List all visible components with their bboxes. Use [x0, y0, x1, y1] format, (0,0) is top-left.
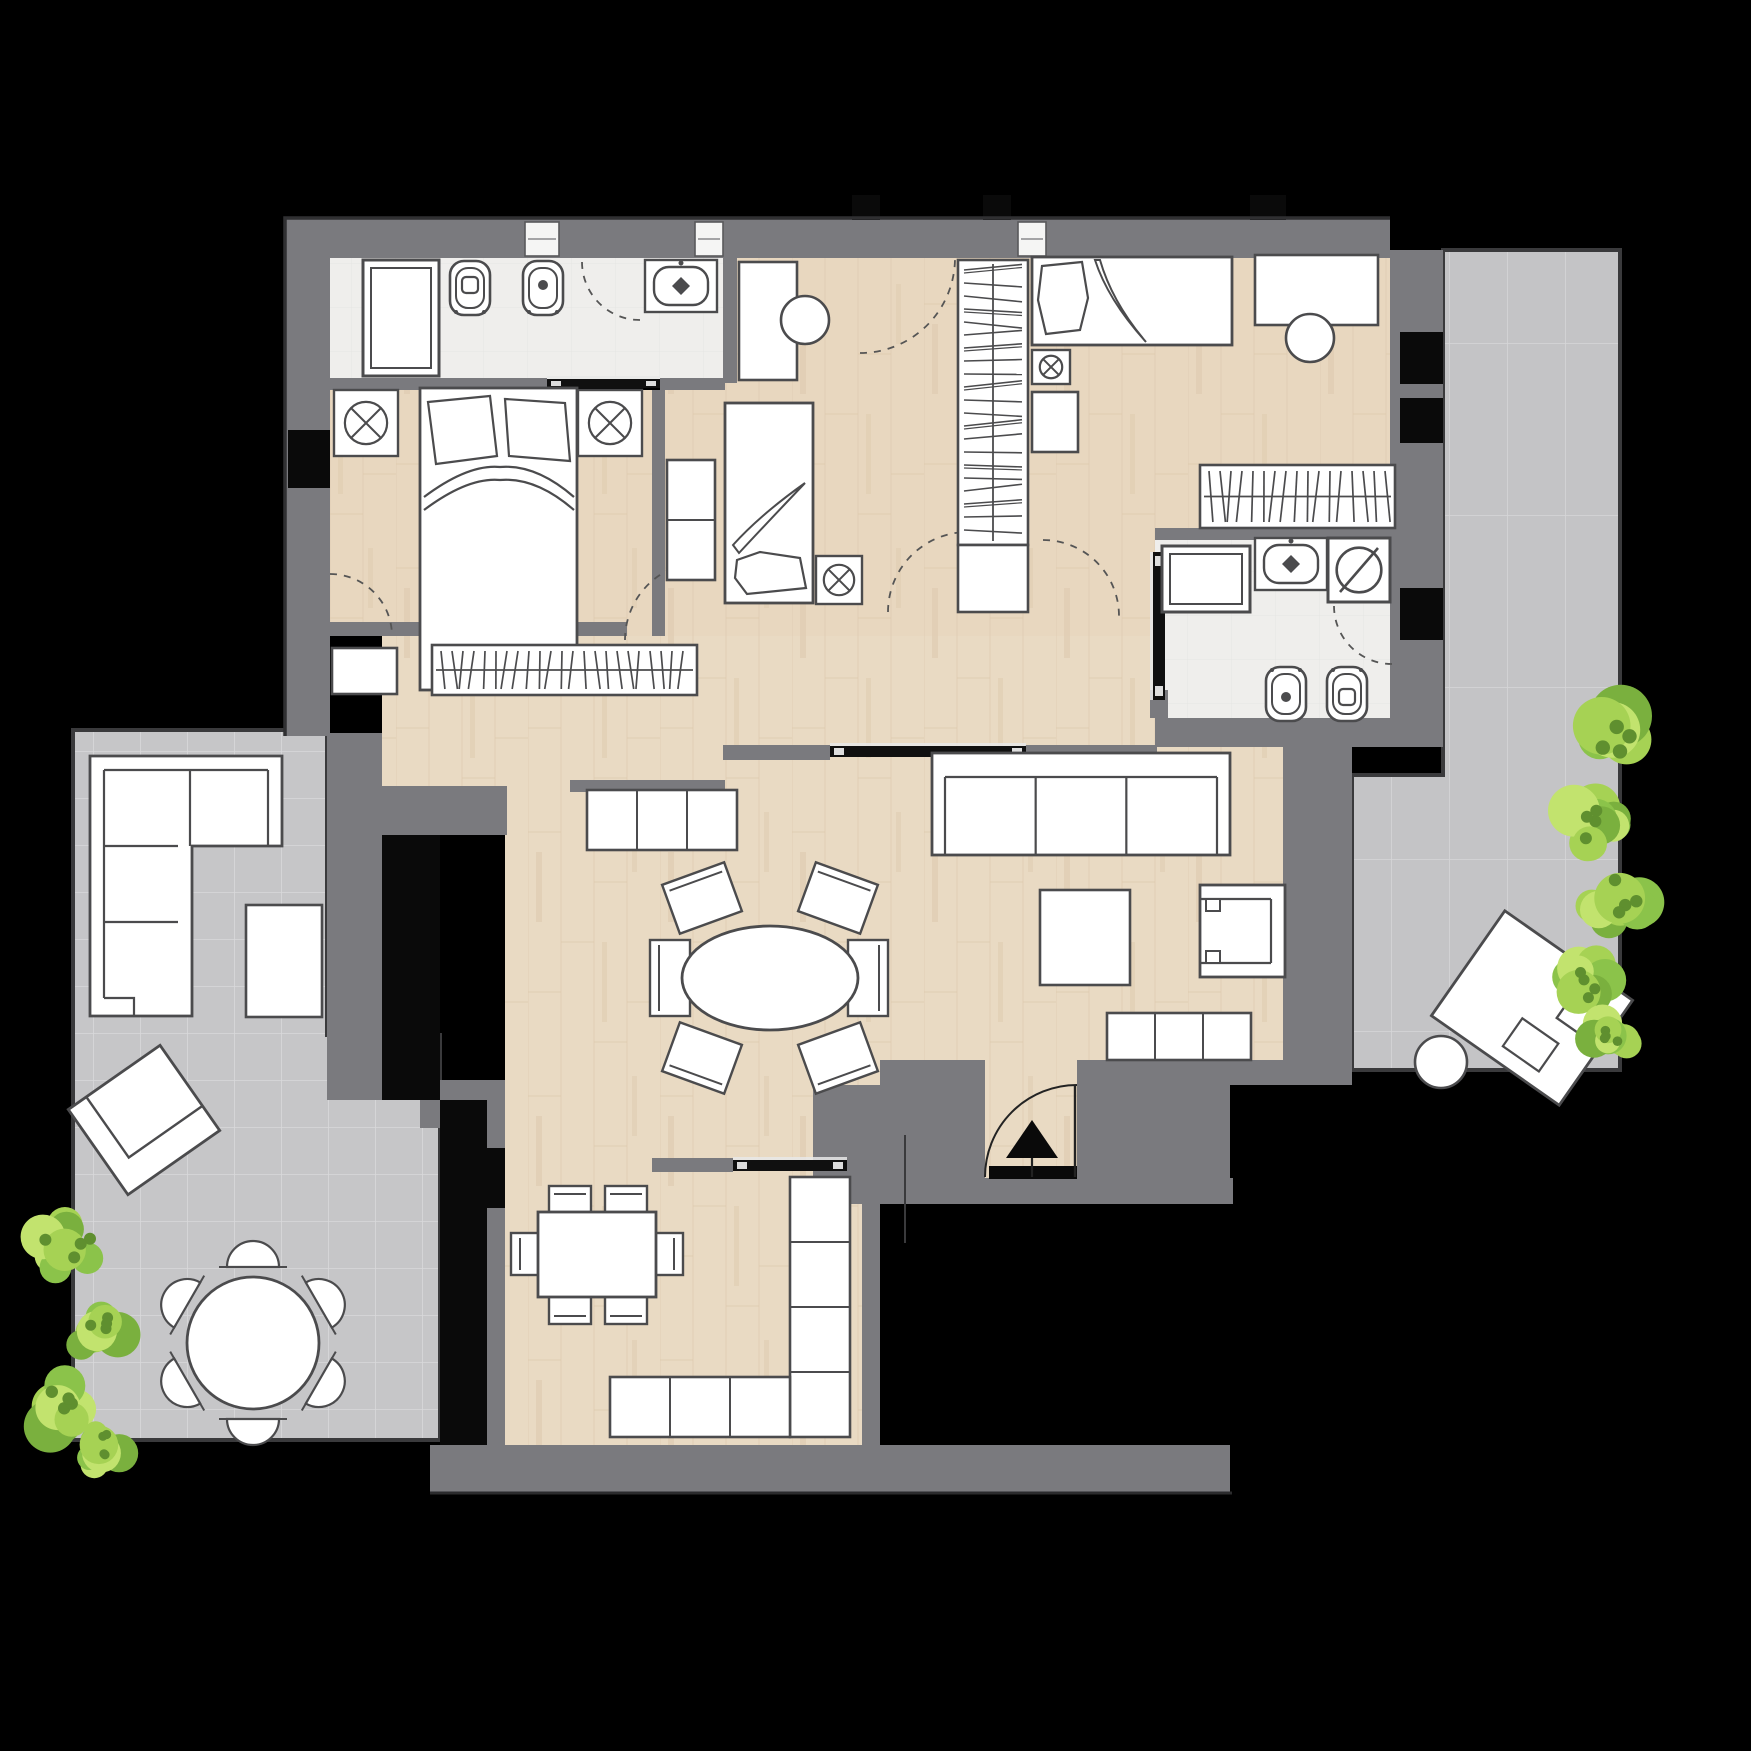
- side-table: [1415, 1036, 1467, 1088]
- bidet-hinge: [527, 310, 531, 314]
- wall: [1155, 718, 1390, 747]
- wall: [1077, 1085, 1230, 1180]
- cabinet: [1032, 392, 1078, 452]
- wall-gap: [487, 1148, 505, 1208]
- sliding-door-kitchen-track: [733, 1157, 847, 1160]
- kitchen-table-chair: [549, 1296, 591, 1324]
- sliding-door-kitchen-handle: [833, 1162, 843, 1169]
- plant-leaf: [80, 1426, 119, 1465]
- cabinet: [332, 648, 397, 694]
- plant-leaf-dark: [1609, 874, 1621, 886]
- wall-gap: [288, 430, 330, 488]
- plant-leaf-dark: [1600, 1034, 1610, 1044]
- sofa: [932, 753, 1230, 855]
- bidet-drain: [538, 280, 548, 290]
- plant-leaf: [43, 1229, 85, 1271]
- toilet-hinge: [1331, 668, 1335, 672]
- armchair-cushion: [1206, 899, 1220, 911]
- single-bed-pillow: [735, 552, 806, 594]
- coffee-table: [1040, 890, 1130, 985]
- bidet: [523, 261, 563, 315]
- plant-leaf-dark: [75, 1238, 87, 1250]
- plant-leaf-dark: [99, 1449, 108, 1458]
- plant-leaf: [1572, 826, 1607, 861]
- toilet: [450, 261, 490, 315]
- plant-leaf-dark: [1589, 983, 1600, 994]
- wall: [652, 1158, 733, 1172]
- plant-leaf-dark: [85, 1320, 96, 1331]
- plant-leaf-dark: [1622, 729, 1636, 743]
- floor-plan-page: [0, 0, 1751, 1751]
- wall-gap: [382, 835, 440, 1100]
- outdoor-table: [246, 905, 322, 1017]
- sliding-door-bath1-handle: [646, 381, 656, 386]
- bookshelf-book: [1329, 471, 1330, 522]
- plant-leaf-dark: [39, 1234, 51, 1246]
- plant-leaf-dark: [1610, 720, 1624, 734]
- plant-leaf-dark: [1630, 895, 1642, 907]
- sliding-door-bath1-track: [547, 376, 660, 379]
- sliding-door-living-track: [830, 743, 1026, 746]
- toilet-hinge: [454, 310, 458, 314]
- plant-leaf-dark: [102, 1430, 111, 1439]
- shower-tray: [363, 260, 439, 376]
- kitchen-table-chair: [605, 1186, 647, 1214]
- plant-leaf-dark: [1583, 992, 1594, 1003]
- wardrobe-cabinet: [958, 545, 1028, 612]
- floor-plan: [0, 0, 1751, 1751]
- sliding-door-living-handle: [834, 748, 844, 755]
- dining-table: [682, 926, 858, 1030]
- single-bed-pillow: [1038, 262, 1088, 334]
- bookshelf-book: [561, 651, 562, 689]
- wall: [327, 786, 507, 835]
- wall-gap: [440, 1100, 487, 1445]
- bidet-drain: [1281, 692, 1291, 702]
- plant-leaf-dark: [1613, 744, 1627, 758]
- wall: [327, 733, 382, 1037]
- kitchen-counter: [610, 1377, 790, 1437]
- wall-gap: [1400, 588, 1443, 640]
- desk-chair: [781, 296, 829, 344]
- sliding-door-kitchen-handle: [737, 1162, 747, 1169]
- plant-leaf-dark: [1596, 740, 1610, 754]
- plant-leaf-dark: [46, 1386, 58, 1398]
- entry-console: [1107, 1013, 1251, 1060]
- wall: [487, 1085, 505, 1445]
- wall: [430, 1445, 1230, 1493]
- shower-tray: [1162, 546, 1250, 612]
- kitchen-table-chair: [511, 1233, 539, 1275]
- kitchen-table: [538, 1212, 656, 1297]
- wall: [723, 745, 830, 760]
- wall: [1390, 250, 1443, 747]
- sideboard: [587, 790, 737, 850]
- desk-chair: [1286, 314, 1334, 362]
- kitchen-table-chair: [605, 1296, 647, 1324]
- washbasin-dot: [679, 261, 684, 266]
- bidet-hinge: [1298, 668, 1302, 672]
- toilet-hinge: [482, 310, 486, 314]
- wall: [723, 258, 737, 383]
- plant-leaf-dark: [1580, 832, 1592, 844]
- plant-leaf-dark: [101, 1318, 112, 1329]
- pocket-door-bath2-track: [1150, 552, 1153, 700]
- sliding-door-kitchen: [733, 1160, 847, 1171]
- wall: [880, 1060, 1352, 1085]
- wardrobe-hanger: [964, 516, 1022, 517]
- bidet: [1266, 667, 1306, 721]
- double-bed-pillow: [505, 399, 570, 461]
- wall: [285, 258, 330, 736]
- wardrobe-hanger: [964, 452, 1022, 453]
- pocket-door-bath2-handle: [1155, 686, 1163, 696]
- bidet-hinge: [1270, 668, 1274, 672]
- wall-gap: [1400, 398, 1443, 443]
- wall-gap: [1400, 332, 1443, 384]
- wall: [847, 1158, 880, 1172]
- sliding-door-bath1-handle: [551, 381, 561, 386]
- plant-leaf-dark: [68, 1251, 80, 1263]
- double-bed-pillow: [428, 396, 497, 464]
- wall: [862, 1085, 880, 1445]
- toilet: [1327, 667, 1367, 721]
- plant-leaf-dark: [1613, 1036, 1623, 1046]
- plant-leaf-dark: [1575, 967, 1586, 978]
- plant-leaf-dark: [62, 1392, 74, 1404]
- wall: [660, 378, 725, 390]
- plant-leaf-dark: [1581, 811, 1593, 823]
- wall: [285, 218, 1390, 258]
- bidet-hinge: [555, 310, 559, 314]
- toilet-hinge: [1359, 668, 1363, 672]
- kitchen-table-chair: [549, 1186, 591, 1214]
- plant-leaf-dark: [1613, 906, 1625, 918]
- wall: [1283, 745, 1352, 1085]
- outdoor-dining: [187, 1277, 319, 1409]
- washbasin-dot: [1289, 539, 1294, 544]
- bookshelf-book: [1307, 471, 1308, 522]
- wall: [652, 390, 665, 636]
- armchair-cushion: [1206, 951, 1220, 963]
- bookshelf-book: [539, 651, 540, 689]
- kitchen-table-chair: [655, 1233, 683, 1275]
